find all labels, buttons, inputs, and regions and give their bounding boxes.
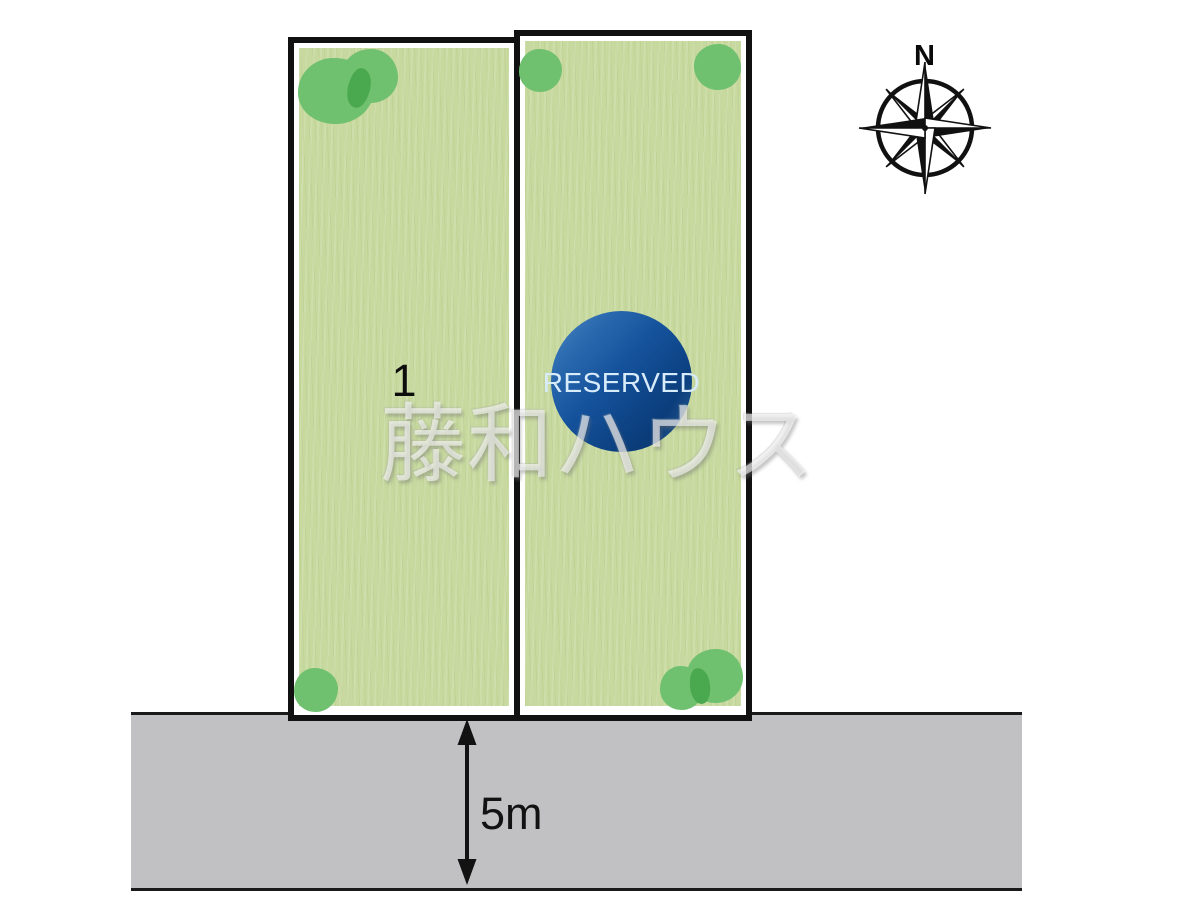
reserved-badge: RESERVED bbox=[551, 311, 692, 452]
reserved-badge-label: RESERVED bbox=[543, 367, 701, 399]
compass: N bbox=[850, 40, 1000, 203]
site-plan-diagram: 1 RESERVED 5m N bbox=[0, 0, 1200, 900]
plot-1-number: 1 bbox=[385, 356, 423, 406]
compass-rose-icon bbox=[850, 53, 1000, 203]
road bbox=[131, 712, 1022, 891]
road-width-label: 5m bbox=[480, 788, 543, 840]
tree-icon bbox=[694, 44, 741, 90]
